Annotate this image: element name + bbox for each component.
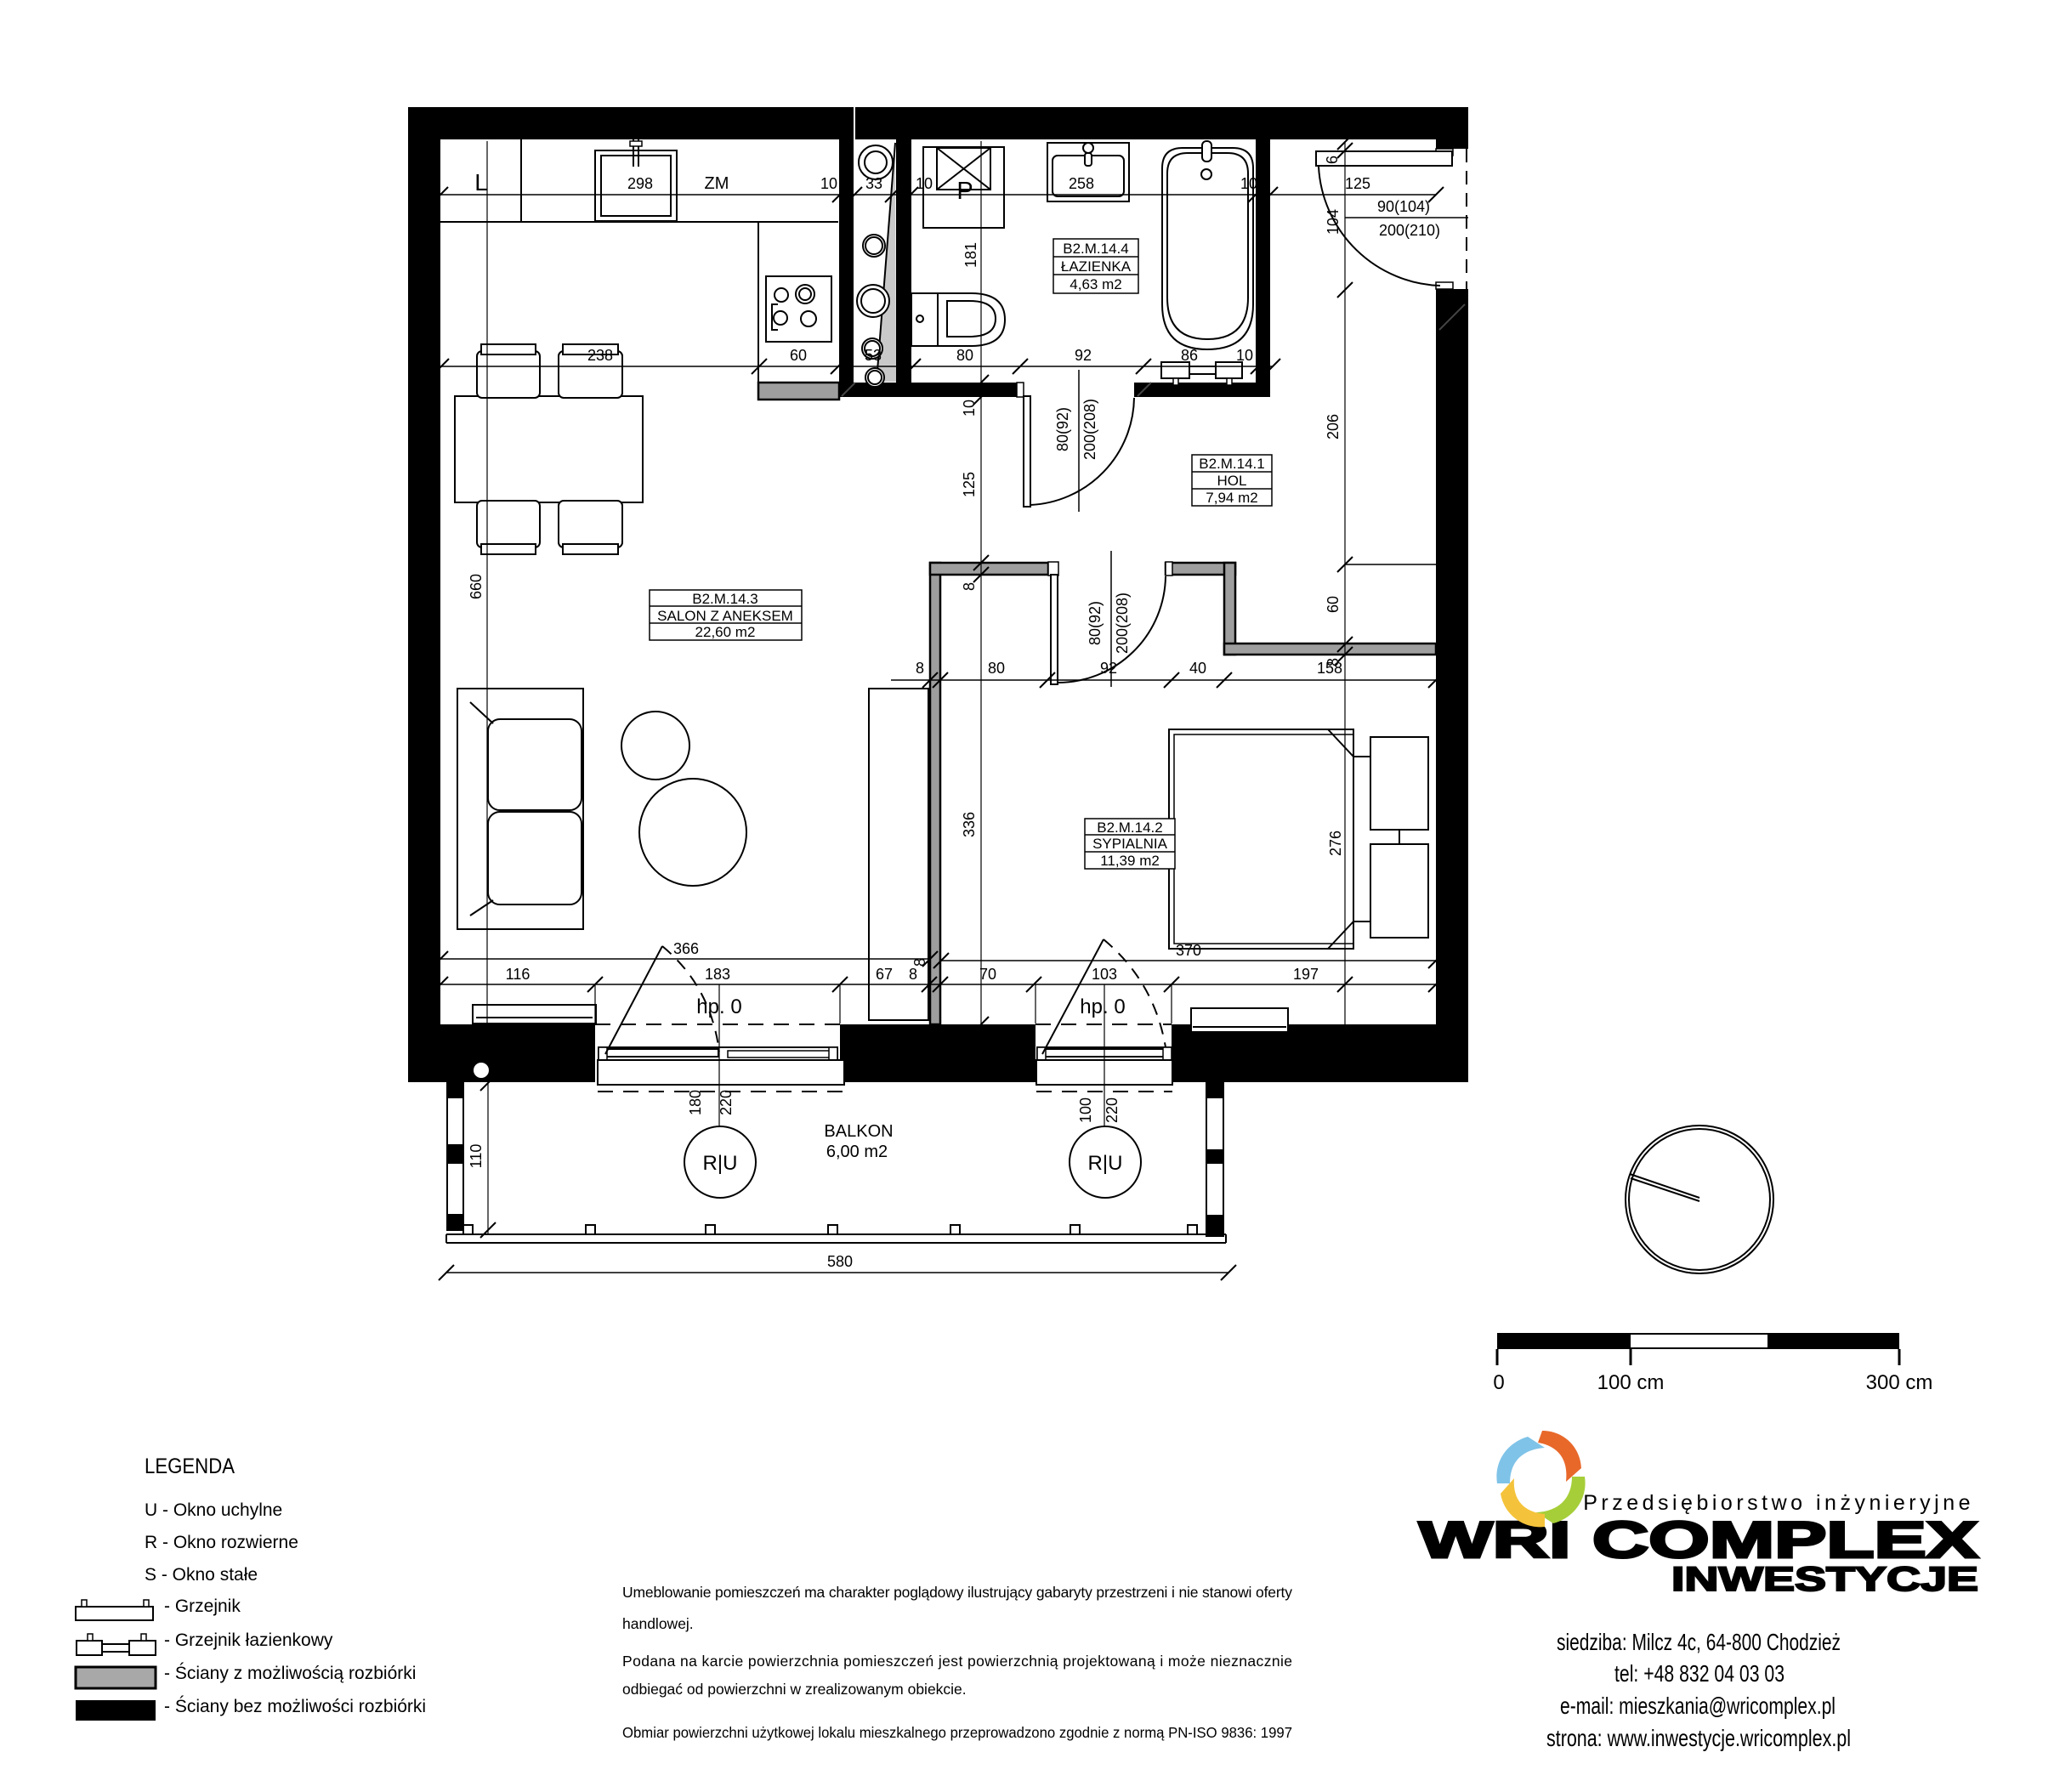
- svg-text:158: 158: [1317, 660, 1342, 677]
- svg-text:100 cm: 100 cm: [1597, 1371, 1665, 1394]
- svg-text:67: 67: [876, 966, 893, 983]
- svg-text:80: 80: [988, 660, 1005, 677]
- svg-text:220: 220: [718, 1090, 735, 1115]
- svg-text:10: 10: [1236, 347, 1253, 364]
- svg-text:90(104): 90(104): [1377, 198, 1430, 215]
- svg-text:SYPIALNIA: SYPIALNIA: [1092, 836, 1168, 852]
- svg-text:U - Okno uchylne: U - Okno uchylne: [145, 1500, 282, 1520]
- svg-text:40: 40: [1189, 660, 1206, 677]
- svg-text:10: 10: [1240, 175, 1257, 192]
- svg-text:7,94 m2: 7,94 m2: [1206, 490, 1257, 506]
- svg-text:125: 125: [961, 472, 978, 497]
- svg-text:53: 53: [865, 347, 882, 364]
- svg-text:60: 60: [790, 347, 807, 364]
- svg-text:hp. 0: hp. 0: [1080, 995, 1125, 1018]
- svg-text:- Grzejnik łazienkowy: - Grzejnik łazienkowy: [164, 1630, 333, 1650]
- svg-text:- Ściany z możliwością rozbiór: - Ściany z możliwością rozbiórki: [164, 1663, 416, 1683]
- svg-text:220: 220: [1104, 1097, 1121, 1123]
- svg-text:11,39 m2: 11,39 m2: [1100, 853, 1160, 869]
- svg-text:92: 92: [1100, 660, 1117, 677]
- svg-text:258: 258: [1069, 175, 1094, 192]
- svg-text:odbiegać od powierzchni w zrea: odbiegać od powierzchni w zrealizowanym …: [622, 1681, 967, 1698]
- svg-text:Obmiar powierzchni użytkowej l: Obmiar powierzchni użytkowej lokalu mies…: [622, 1724, 1292, 1741]
- svg-text:R|U: R|U: [703, 1152, 738, 1175]
- svg-text:33: 33: [865, 175, 882, 192]
- svg-text:- Grzejnik: - Grzejnik: [164, 1596, 241, 1616]
- svg-text:ZM: ZM: [705, 174, 729, 193]
- svg-text:SALON Z ANEKSEM: SALON Z ANEKSEM: [657, 608, 793, 624]
- svg-text:370: 370: [1176, 942, 1201, 959]
- svg-text:R|U: R|U: [1088, 1152, 1123, 1175]
- svg-text:86: 86: [1181, 347, 1198, 364]
- svg-text:strona: www.inwestycje.wricomp: strona: www.inwestycje.wricomplex.pl: [1546, 1725, 1851, 1751]
- svg-text:S - Okno stałe: S - Okno stałe: [145, 1565, 258, 1585]
- svg-text:ŁAZIENKA: ŁAZIENKA: [1061, 258, 1132, 275]
- svg-text:10: 10: [820, 175, 837, 192]
- svg-text:116: 116: [506, 966, 531, 983]
- svg-text:Umeblowanie pomieszczeń ma cha: Umeblowanie pomieszczeń ma charakter pog…: [622, 1584, 1292, 1601]
- svg-text:BALKON: BALKON: [824, 1122, 893, 1141]
- svg-text:siedziba: Milcz 4c, 64-800 Cho: siedziba: Milcz 4c, 64-800 Chodzież: [1557, 1629, 1841, 1655]
- svg-text:70: 70: [979, 966, 996, 983]
- svg-text:60: 60: [1325, 596, 1342, 613]
- svg-text:8: 8: [961, 582, 978, 591]
- svg-text:10: 10: [916, 175, 933, 192]
- svg-text:580: 580: [827, 1253, 853, 1270]
- svg-text:handlowej.: handlowej.: [622, 1615, 694, 1632]
- svg-text:HOL: HOL: [1217, 473, 1247, 489]
- svg-text:366: 366: [673, 940, 699, 957]
- svg-text:22,60 m2: 22,60 m2: [695, 624, 756, 640]
- svg-text:660: 660: [468, 574, 485, 599]
- svg-text:B2.M.14.3: B2.M.14.3: [692, 591, 758, 607]
- svg-text:183: 183: [705, 966, 730, 983]
- svg-text:80(92): 80(92): [1054, 407, 1071, 451]
- svg-text:4,63 m2: 4,63 m2: [1070, 276, 1121, 292]
- svg-text:200(210): 200(210): [1379, 222, 1440, 239]
- svg-text:B2.M.14.1: B2.M.14.1: [1199, 456, 1265, 472]
- svg-text:6,00 m2: 6,00 m2: [826, 1143, 888, 1161]
- svg-text:LEGENDA: LEGENDA: [145, 1455, 235, 1478]
- svg-text:INWESTYCJE: INWESTYCJE: [1671, 1561, 1978, 1598]
- svg-text:B2.M.14.4: B2.M.14.4: [1063, 241, 1129, 257]
- svg-text:Podana na karcie powierzchnia: Podana na karcie powierzchnia pomieszcze…: [622, 1653, 1292, 1670]
- svg-text:336: 336: [961, 812, 978, 837]
- svg-text:110: 110: [468, 1144, 485, 1169]
- svg-text:276: 276: [1327, 831, 1344, 856]
- svg-text:298: 298: [627, 175, 653, 192]
- svg-text:238: 238: [587, 347, 613, 364]
- svg-text:180: 180: [687, 1090, 704, 1115]
- svg-text:10: 10: [961, 400, 978, 417]
- svg-text:92: 92: [1075, 347, 1092, 364]
- svg-text:200(208): 200(208): [1114, 593, 1131, 654]
- svg-text:e-mail: mieszkania@wricomplex.: e-mail: mieszkania@wricomplex.pl: [1560, 1693, 1836, 1719]
- svg-text:B2.M.14.2: B2.M.14.2: [1097, 819, 1163, 836]
- svg-text:103: 103: [1092, 966, 1117, 983]
- svg-text:200(208): 200(208): [1081, 399, 1098, 460]
- svg-text:100: 100: [1077, 1097, 1094, 1123]
- svg-text:300 cm: 300 cm: [1866, 1371, 1933, 1394]
- svg-text:P: P: [956, 178, 973, 205]
- svg-text:0: 0: [1493, 1371, 1504, 1394]
- svg-text:hp. 0: hp. 0: [696, 995, 741, 1018]
- svg-text:206: 206: [1325, 414, 1342, 439]
- svg-text:181: 181: [962, 242, 979, 268]
- svg-text:104: 104: [1325, 209, 1342, 235]
- svg-text:R - Okno rozwierne: R - Okno rozwierne: [145, 1533, 298, 1552]
- svg-text:L: L: [474, 169, 488, 196]
- svg-text:80(92): 80(92): [1087, 601, 1104, 645]
- svg-text:125: 125: [1345, 175, 1370, 192]
- svg-text:8: 8: [909, 966, 917, 983]
- svg-text:197: 197: [1293, 966, 1319, 983]
- svg-text:80: 80: [956, 347, 973, 364]
- svg-text:8: 8: [916, 660, 924, 677]
- svg-text:tel: +48 832 04 03 03: tel: +48 832 04 03 03: [1614, 1660, 1784, 1687]
- svg-text:- Ściany bez możliwości rozbió: - Ściany bez możliwości rozbiórki: [164, 1696, 426, 1716]
